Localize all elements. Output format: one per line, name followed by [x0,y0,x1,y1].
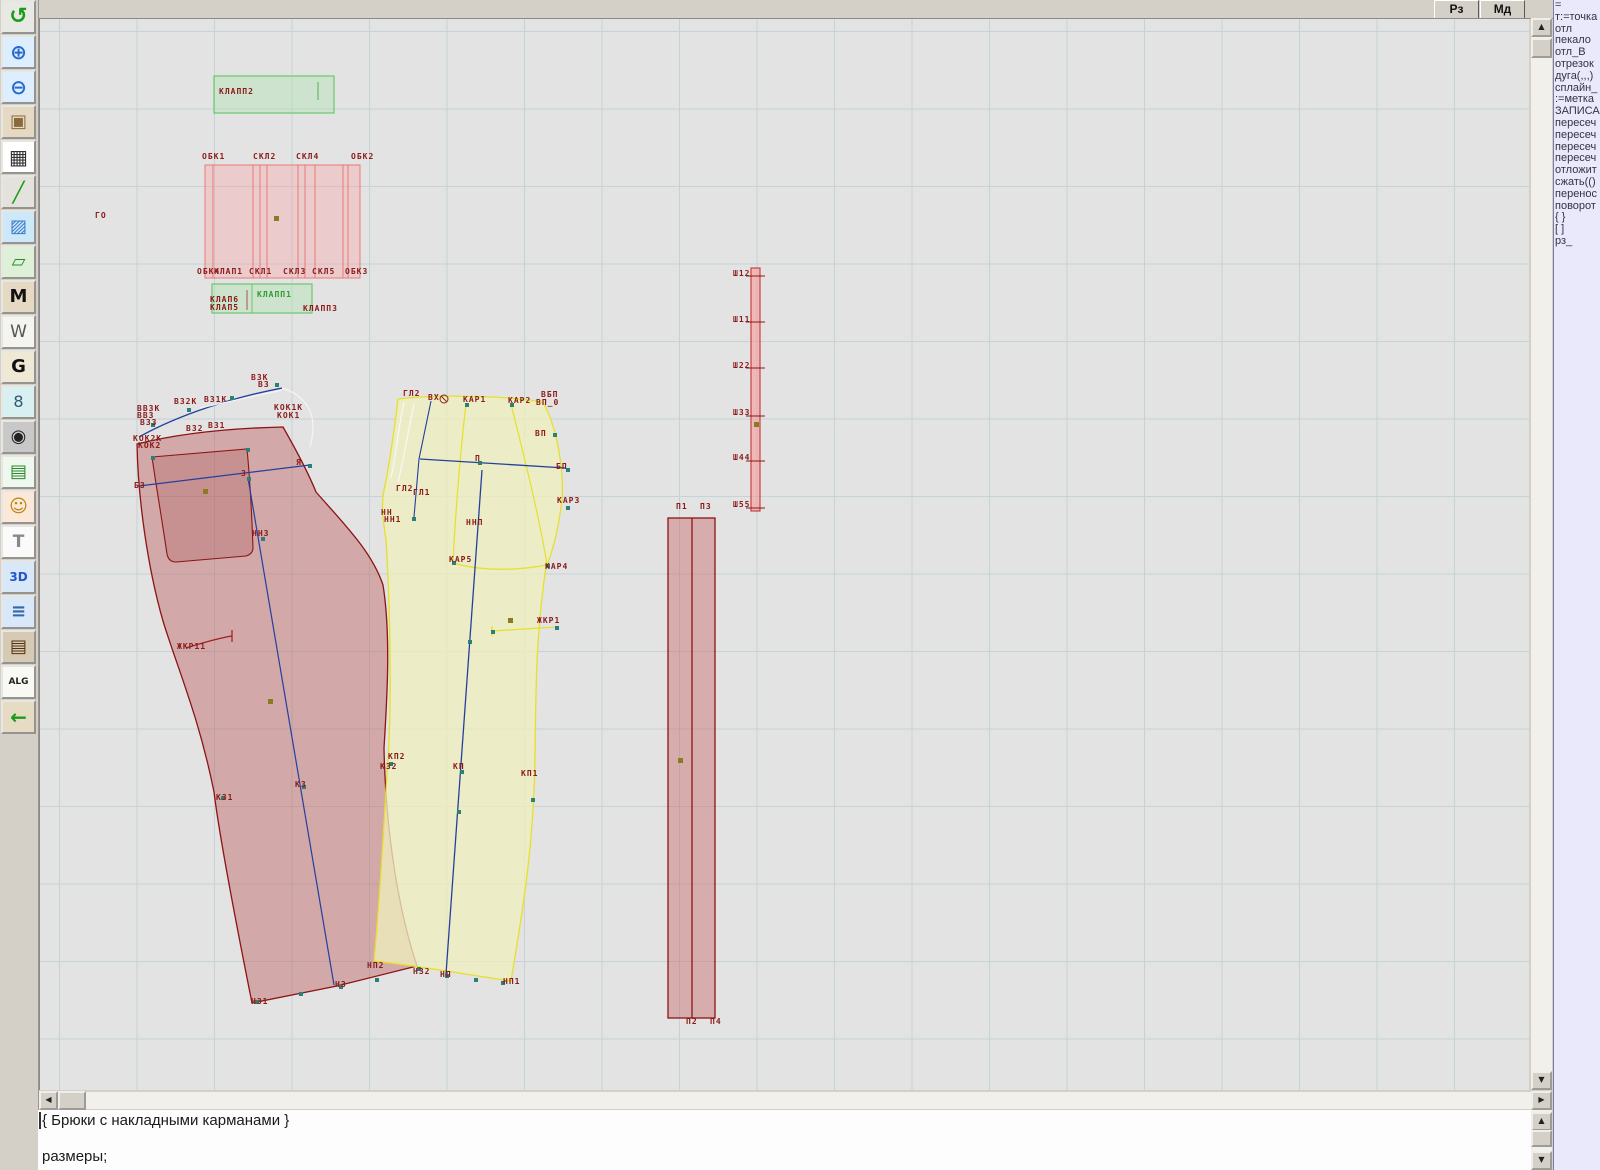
command-item[interactable]: пересеч [1554,118,1600,130]
reload-button[interactable]: ↺ [1,0,36,34]
command-list-panel: =т:=точкаотлпекалоотл_Вотрезокдуга(,,,)с… [1553,0,1600,1170]
command-item[interactable]: пересеч [1554,130,1600,142]
command-item[interactable]: перенос [1554,189,1600,201]
text-scroll-up-button[interactable]: ▲ [1531,1112,1552,1131]
command-item[interactable]: рз_ [1554,236,1600,248]
alg-button[interactable]: ALG [1,665,36,699]
command-item[interactable]: сжать(() [1554,177,1600,189]
drafting-w-button[interactable]: W [1,315,36,349]
scroll-up-button[interactable]: ▲ [1531,18,1552,37]
spreadsheet-button[interactable]: ▤ [1,455,36,489]
zoom-out-icon: ⊖ [10,77,27,97]
top-bar: РзМд [38,0,1553,19]
command-item[interactable]: отрезок [1554,59,1600,71]
scroll-down-button[interactable]: ▼ [1531,1071,1552,1090]
text-caret [39,1112,41,1129]
ruler-button[interactable]: 8 [1,385,36,419]
drafting-w-icon: W [10,324,27,341]
left-toolbar: ↺⊕⊖▣▦╱▨▱MWG8◉▤☺T3D≡▤ALG← [0,0,39,1170]
camera-icon: ◉ [11,428,27,446]
grading-g-button[interactable]: G [1,350,36,384]
lekalo-m-button[interactable]: M [1,280,36,314]
command-item[interactable]: т:=точка [1554,12,1600,24]
alg-icon: ALG [8,678,28,687]
zoom-in-button[interactable]: ⊕ [1,35,36,69]
model-photo-button[interactable]: ☺ [1,490,36,524]
books-button[interactable]: ▤ [1,630,36,664]
ruler-icon: 8 [13,394,23,410]
pattern-piece-icon: ▱ [12,253,26,271]
spreadsheet-icon: ▤ [10,463,27,481]
threed-button[interactable]: 3D [1,560,36,594]
text-scroll-down-button[interactable]: ▼ [1531,1151,1552,1170]
command-list-button[interactable]: ≡ [1,595,36,629]
garment-button[interactable]: T [1,525,36,559]
canvas-vscrollbar[interactable] [1531,18,1552,1090]
zoom-out-button[interactable]: ⊖ [1,70,36,104]
scroll-left-button[interactable]: ◀ [39,1091,58,1110]
canvas-hscroll-thumb[interactable] [58,1091,86,1110]
program-line-2: размеры; [42,1148,107,1165]
garment-icon: T [13,534,25,551]
image-button[interactable]: ▨ [1,210,36,244]
measure-line-icon: ╱ [12,182,24,202]
canvas-hscrollbar[interactable] [39,1092,1531,1109]
program-text-area[interactable]: { Брюки с накладными карманами } размеры… [38,1110,1531,1170]
grid-button[interactable]: ▦ [1,140,36,174]
app-window: РзМд ↺⊕⊖▣▦╱▨▱MWG8◉▤☺T3D≡▤ALG← [0,0,1600,1170]
preview-piece-icon: ▣ [10,113,27,131]
canvas-vscroll-thumb[interactable] [1531,38,1552,58]
grid-icon: ▦ [9,147,28,167]
zoom-in-icon: ⊕ [10,42,27,62]
threed-icon: 3D [9,571,27,583]
books-icon: ▤ [10,638,27,656]
exit-button[interactable]: ← [1,700,36,734]
lekalo-m-icon: M [10,288,28,306]
camera-button[interactable]: ◉ [1,420,36,454]
preview-piece-button[interactable]: ▣ [1,105,36,139]
mode-md-button[interactable]: Мд [1480,0,1525,19]
grading-g-icon: G [11,358,26,376]
pattern-piece-button[interactable]: ▱ [1,245,36,279]
reload-icon: ↺ [9,6,27,28]
exit-icon: ← [10,707,27,727]
drawing-canvas[interactable] [39,18,1529,1090]
mode-rz-button[interactable]: Рз [1434,0,1479,19]
model-photo-icon: ☺ [9,498,28,516]
measure-line-button[interactable]: ╱ [1,175,36,209]
image-icon: ▨ [10,218,27,236]
command-item[interactable]: дуга(,,,) [1554,71,1600,83]
command-list-icon: ≡ [11,603,26,621]
program-line-1: { Брюки с накладными карманами } [42,1112,289,1129]
text-vscroll-thumb[interactable] [1531,1130,1552,1147]
scroll-right-button[interactable]: ▶ [1531,1091,1552,1110]
